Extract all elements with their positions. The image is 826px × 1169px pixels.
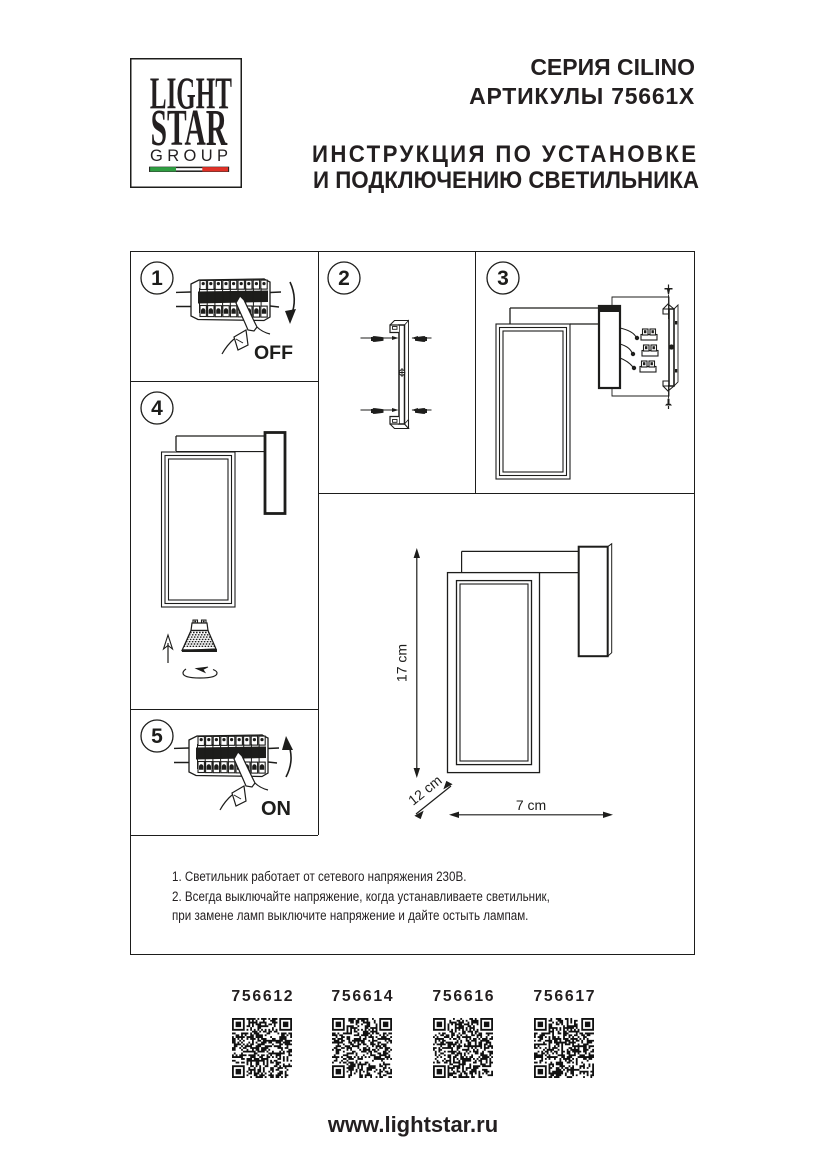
svg-text:GROUP: GROUP xyxy=(150,147,228,165)
svg-text:ON: ON xyxy=(261,798,291,820)
svg-text:5: 5 xyxy=(151,725,163,748)
svg-text:17 cm: 17 cm xyxy=(394,644,410,682)
svg-text:OFF: OFF xyxy=(254,342,293,364)
svg-text:12 cm: 12 cm xyxy=(405,772,445,808)
svg-text:7 cm: 7 cm xyxy=(516,797,546,813)
svg-text:1: 1 xyxy=(151,267,163,290)
